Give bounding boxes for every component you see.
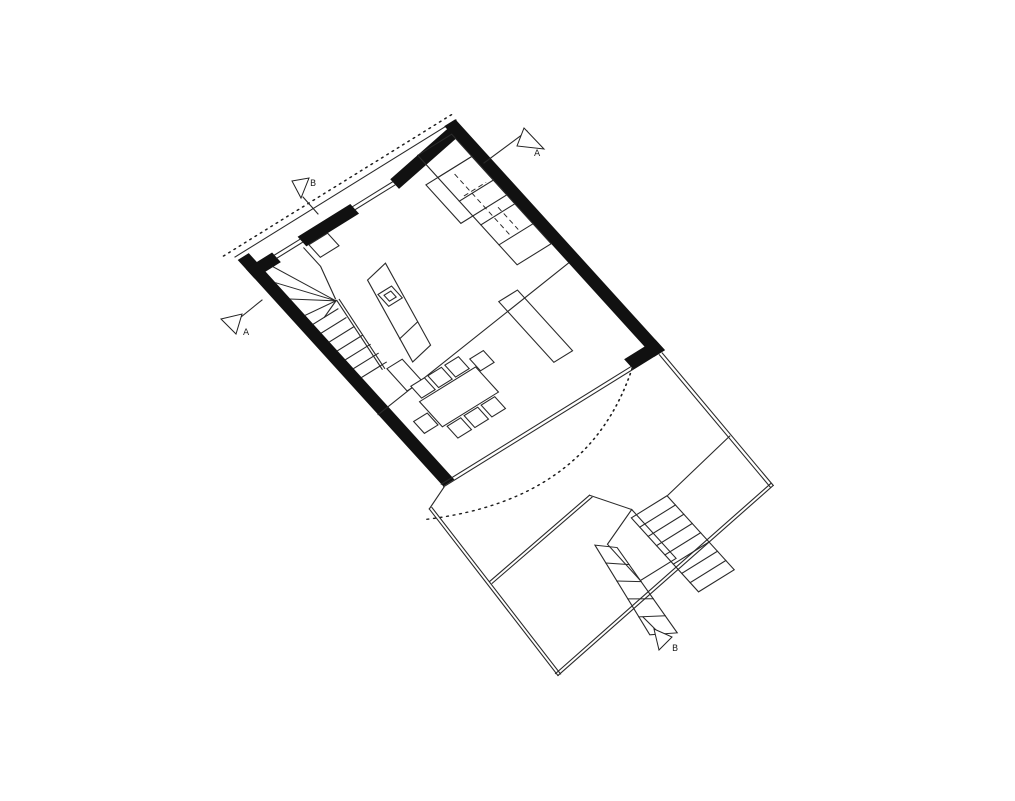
dining-chair	[481, 397, 505, 417]
sw-wall	[238, 253, 455, 486]
nw-wall-mid-segment	[298, 204, 359, 246]
section-marker-a-top: A	[484, 128, 544, 163]
stair-tread	[690, 560, 726, 582]
section-markers: A B A B	[221, 128, 678, 654]
section-label: B	[310, 179, 316, 189]
floor-plan-canvas: A B A B	[0, 0, 1015, 801]
island-divider	[396, 322, 421, 339]
dining-chair	[411, 378, 435, 398]
stair-parapet-line	[656, 436, 742, 495]
sideboard	[499, 290, 573, 362]
counter-divider	[459, 180, 493, 201]
floor-plan-sheet: A B A B	[0, 0, 1015, 801]
window-glazing-line	[355, 185, 395, 210]
stair-tread	[354, 353, 379, 368]
stair-tread	[617, 572, 641, 591]
glazed-se-facade	[441, 367, 633, 487]
dining-chair	[414, 413, 438, 433]
dining-chair	[445, 357, 469, 377]
stair-tread	[665, 533, 701, 555]
terrace-deck	[476, 418, 826, 688]
facade-glazing-line	[441, 367, 631, 485]
ne-wall	[444, 119, 665, 357]
terrace-dotted-arc	[412, 368, 667, 542]
stair-tread	[640, 505, 676, 527]
stair-tread	[648, 514, 684, 536]
window-glazing-line	[274, 239, 300, 255]
stair-tread	[329, 327, 354, 342]
island-outline	[345, 263, 452, 362]
facade-glazing-line	[444, 369, 634, 487]
stair-tread	[673, 542, 709, 564]
upper-cabinet-dashed-line	[498, 207, 518, 229]
deck-edge	[476, 495, 604, 581]
terrace-corner-jog	[422, 487, 451, 509]
stair-tread	[321, 318, 346, 333]
dining-chair	[447, 418, 471, 438]
section-label: A	[534, 149, 541, 159]
section-marker-a-left: A	[221, 300, 262, 338]
roof-edge-line	[235, 120, 456, 257]
section-flag-icon	[517, 128, 544, 149]
exterior-stair-landing	[596, 510, 676, 581]
stair-tread	[682, 551, 718, 573]
section-marker-b-top: B	[292, 178, 318, 214]
window-glazing-line	[353, 182, 393, 207]
dining-chair	[428, 367, 452, 387]
cooktop-icon	[378, 286, 402, 306]
terrace-boundary	[407, 352, 812, 676]
kitchen-island	[345, 263, 452, 362]
roof-overhang-dotted-line	[223, 114, 453, 256]
exterior-stair-upper-flight	[631, 496, 734, 592]
section-label: B	[672, 644, 678, 654]
stair-tread	[337, 336, 362, 351]
section-leader-line	[241, 300, 262, 317]
section-leader-line	[303, 197, 318, 214]
deck-stair-connector	[590, 484, 632, 521]
section-flag-icon	[292, 178, 309, 198]
stair-tread	[346, 344, 371, 359]
section-flag-icon	[654, 629, 672, 650]
floor-plan	[193, 114, 835, 696]
window-glazing-line	[277, 242, 303, 258]
upper-cabinet-dashed-line	[464, 182, 486, 196]
deck-edge	[478, 497, 606, 583]
dining-chair	[464, 407, 488, 427]
stair-tread	[657, 523, 693, 545]
section-marker-b-bottom: B	[643, 617, 678, 654]
section-flag-icon	[221, 314, 242, 334]
mezzanine-edge-line	[359, 263, 588, 415]
cooktop-inner-icon	[384, 291, 396, 301]
stair-boundary	[294, 248, 344, 299]
roof-overhang	[223, 114, 457, 261]
section-label: A	[243, 328, 250, 338]
exterior-walls	[234, 119, 665, 487]
stair-tread	[313, 309, 338, 324]
